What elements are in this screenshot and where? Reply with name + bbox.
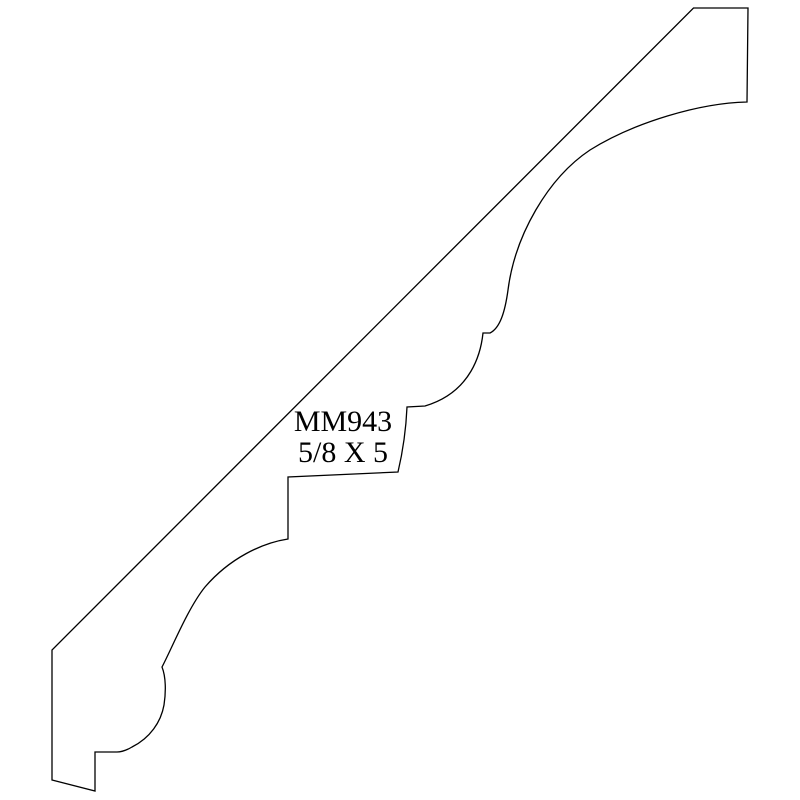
molding-profile-drawing: MM943 5/8 X 5	[0, 0, 800, 800]
part-number-text: MM943	[233, 406, 453, 437]
part-label: MM943 5/8 X 5	[233, 406, 453, 468]
molding-profile-svg	[0, 0, 800, 800]
molding-profile-outline	[52, 8, 748, 791]
part-dimensions-text: 5/8 X 5	[233, 437, 453, 468]
